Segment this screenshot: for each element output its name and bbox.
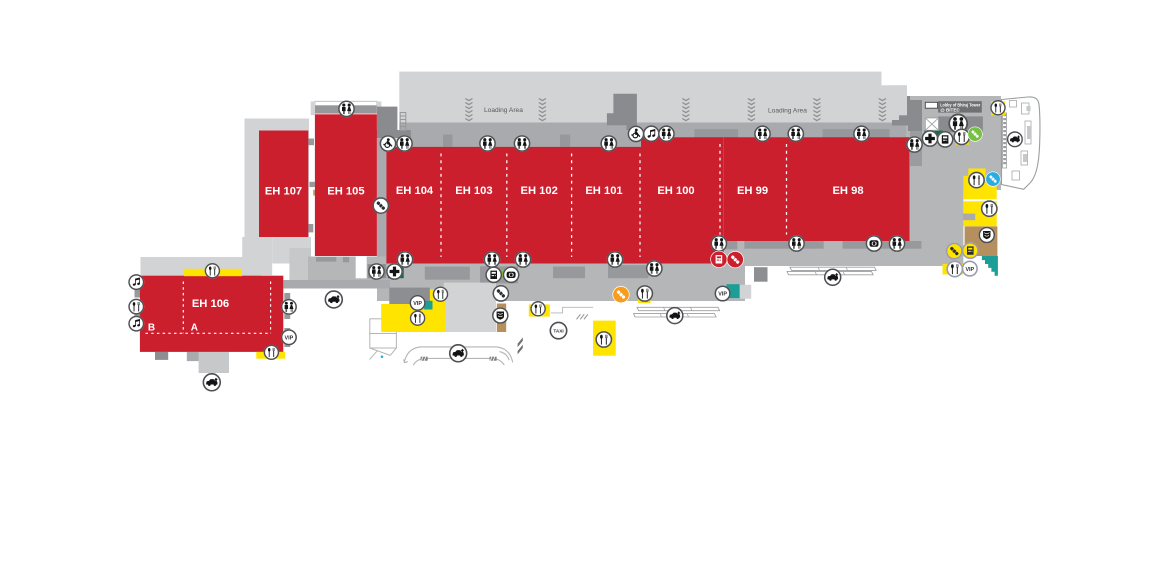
- svg-text:EH 105: EH 105: [327, 186, 364, 198]
- svg-text:EH 99: EH 99: [737, 185, 768, 197]
- svg-text:EH 107: EH 107: [265, 186, 302, 198]
- svg-text:EH 102: EH 102: [521, 185, 558, 197]
- svg-text:EH 101: EH 101: [585, 185, 622, 197]
- svg-text:Loading Area: Loading Area: [484, 107, 523, 114]
- svg-text:EH 98: EH 98: [832, 185, 863, 197]
- svg-text:B: B: [148, 323, 155, 334]
- svg-text:EH 104: EH 104: [396, 185, 434, 197]
- svg-text:@ BITEC: @ BITEC: [940, 108, 960, 113]
- svg-text:Loading Area: Loading Area: [768, 108, 807, 115]
- svg-text:EH 106: EH 106: [192, 298, 229, 310]
- svg-text:EH 103: EH 103: [455, 185, 492, 197]
- svg-text:EH 100: EH 100: [657, 185, 694, 197]
- svg-text:A: A: [191, 323, 198, 334]
